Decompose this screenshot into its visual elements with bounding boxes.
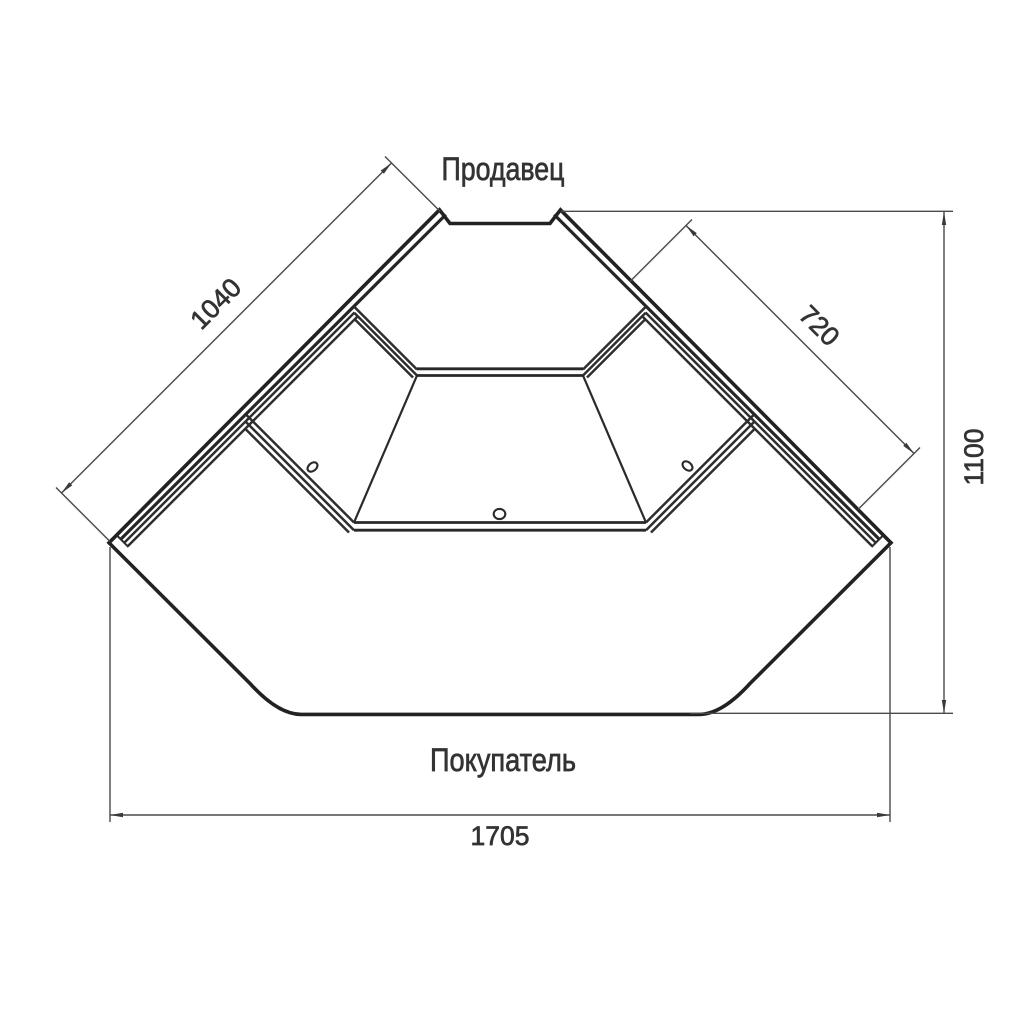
svg-text:1705: 1705 (471, 821, 530, 851)
svg-text:Покупатель: Покупатель (430, 742, 576, 778)
svg-text:Продавец: Продавец (442, 151, 565, 187)
svg-text:1100: 1100 (959, 429, 989, 486)
